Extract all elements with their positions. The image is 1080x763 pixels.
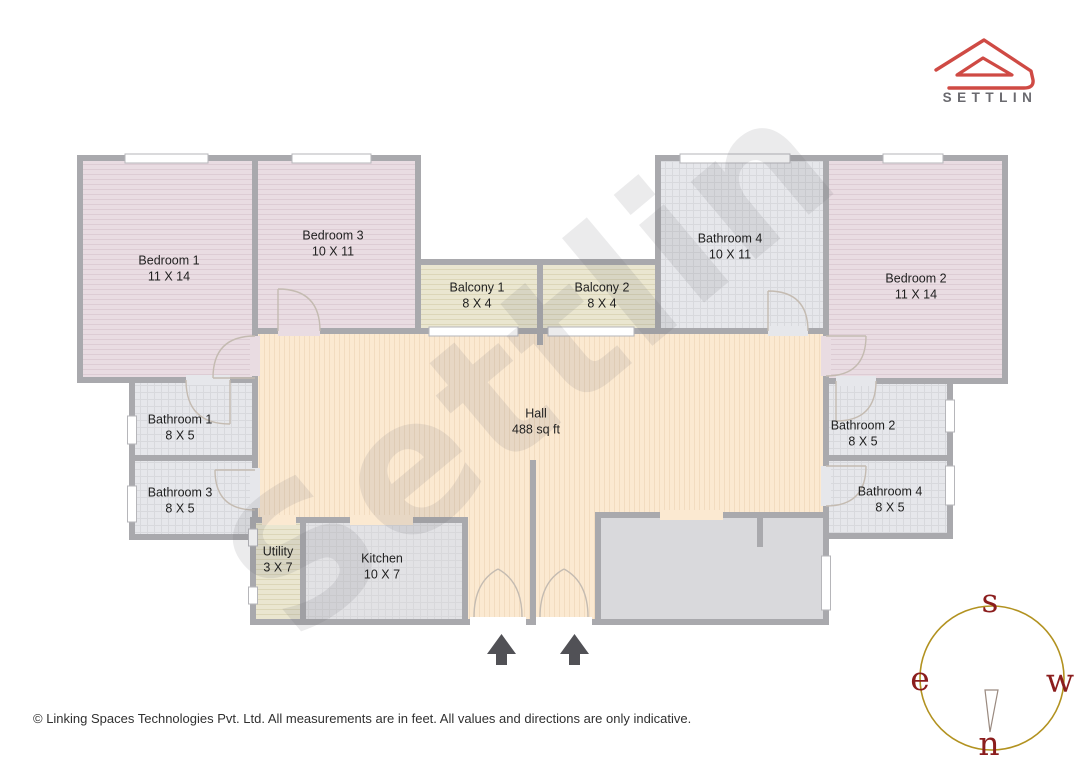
room-label-kitchen: Kitchen 10 X 7: [361, 551, 403, 582]
room-dim: 8 X 5: [148, 428, 213, 444]
room-dim: 11 X 14: [138, 269, 199, 285]
window: [249, 529, 258, 546]
window: [128, 416, 137, 444]
room-name: Bedroom 3: [302, 228, 363, 244]
window: [292, 154, 371, 163]
room-name: Bathroom 3: [148, 485, 213, 501]
room-dim: 10 X 11: [302, 244, 363, 260]
brand-name: SETTLIN: [925, 90, 1055, 105]
room-name: Bathroom 2: [831, 418, 896, 434]
room-label-hall: Hall 488 sq ft: [512, 406, 560, 437]
compass-north: n: [978, 724, 999, 763]
room-name: Bathroom 4: [698, 231, 763, 247]
room-dim: 3 X 7: [263, 560, 294, 576]
room-dim: 10 X 7: [361, 567, 403, 583]
room-name: Bathroom 4: [858, 484, 923, 500]
room-label-bathroom-2: Bathroom 2 8 X 5: [831, 418, 896, 449]
room-name: Utility: [263, 544, 294, 560]
window: [429, 327, 518, 336]
room-name: Balcony 1: [450, 280, 505, 296]
room-extra: [598, 515, 826, 622]
copyright-note: © Linking Spaces Technologies Pvt. Ltd. …: [33, 711, 691, 726]
room-dim: 8 X 4: [575, 296, 630, 312]
compass-east: e: [910, 659, 930, 698]
entrance-arrow-icon: [560, 634, 589, 665]
room-name: Bedroom 2: [885, 271, 946, 287]
room-dim: 8 X 4: [450, 296, 505, 312]
floor-plan-drawing: s e w n: [0, 0, 1080, 763]
room-name: Balcony 2: [575, 280, 630, 296]
room-label-utility: Utility 3 X 7: [263, 544, 294, 575]
window: [883, 154, 943, 163]
room-label-bedroom-1: Bedroom 1 11 X 14: [138, 253, 199, 284]
room-dim: 8 X 5: [831, 434, 896, 450]
room-name: Bedroom 1: [138, 253, 199, 269]
compass: s e w n: [910, 581, 1074, 763]
window: [128, 486, 137, 522]
room-label-bedroom-2: Bedroom 2 11 X 14: [885, 271, 946, 302]
entrance-arrow-icon: [487, 634, 516, 665]
room-dim: 8 X 5: [148, 501, 213, 517]
window: [822, 556, 831, 610]
room-label-bathroom-1: Bathroom 1 8 X 5: [148, 412, 213, 443]
settlin-logo-icon: [936, 40, 1033, 88]
room-label-bathroom-4-right: Bathroom 4 8 X 5: [858, 484, 923, 515]
room-label-bedroom-3: Bedroom 3 10 X 11: [302, 228, 363, 259]
room-dim: 8 X 5: [858, 500, 923, 516]
room-name: Hall: [512, 406, 560, 422]
floor-plan-page: s e w n Settlin Bedroom 1 11 X 14 Bedroo…: [0, 0, 1080, 763]
window: [125, 154, 208, 163]
room-dim: 488 sq ft: [512, 422, 560, 438]
window: [946, 466, 955, 505]
window: [249, 587, 258, 604]
room-dim: 10 X 11: [698, 247, 763, 263]
room-name: Kitchen: [361, 551, 403, 567]
rooms: [80, 158, 1005, 622]
window: [946, 400, 955, 432]
room-bedroom-2: [826, 158, 1005, 381]
room-label-bathroom-3: Bathroom 3 8 X 5: [148, 485, 213, 516]
room-name: Bathroom 1: [148, 412, 213, 428]
compass-south: s: [982, 581, 999, 620]
room-label-bathroom-4-top: Bathroom 4 10 X 11: [698, 231, 763, 262]
compass-west: w: [1046, 661, 1074, 700]
room-label-balcony-1: Balcony 1 8 X 4: [450, 280, 505, 311]
window: [680, 154, 790, 163]
room-dim: 11 X 14: [885, 287, 946, 303]
room-label-balcony-2: Balcony 2 8 X 4: [575, 280, 630, 311]
window: [548, 327, 634, 336]
